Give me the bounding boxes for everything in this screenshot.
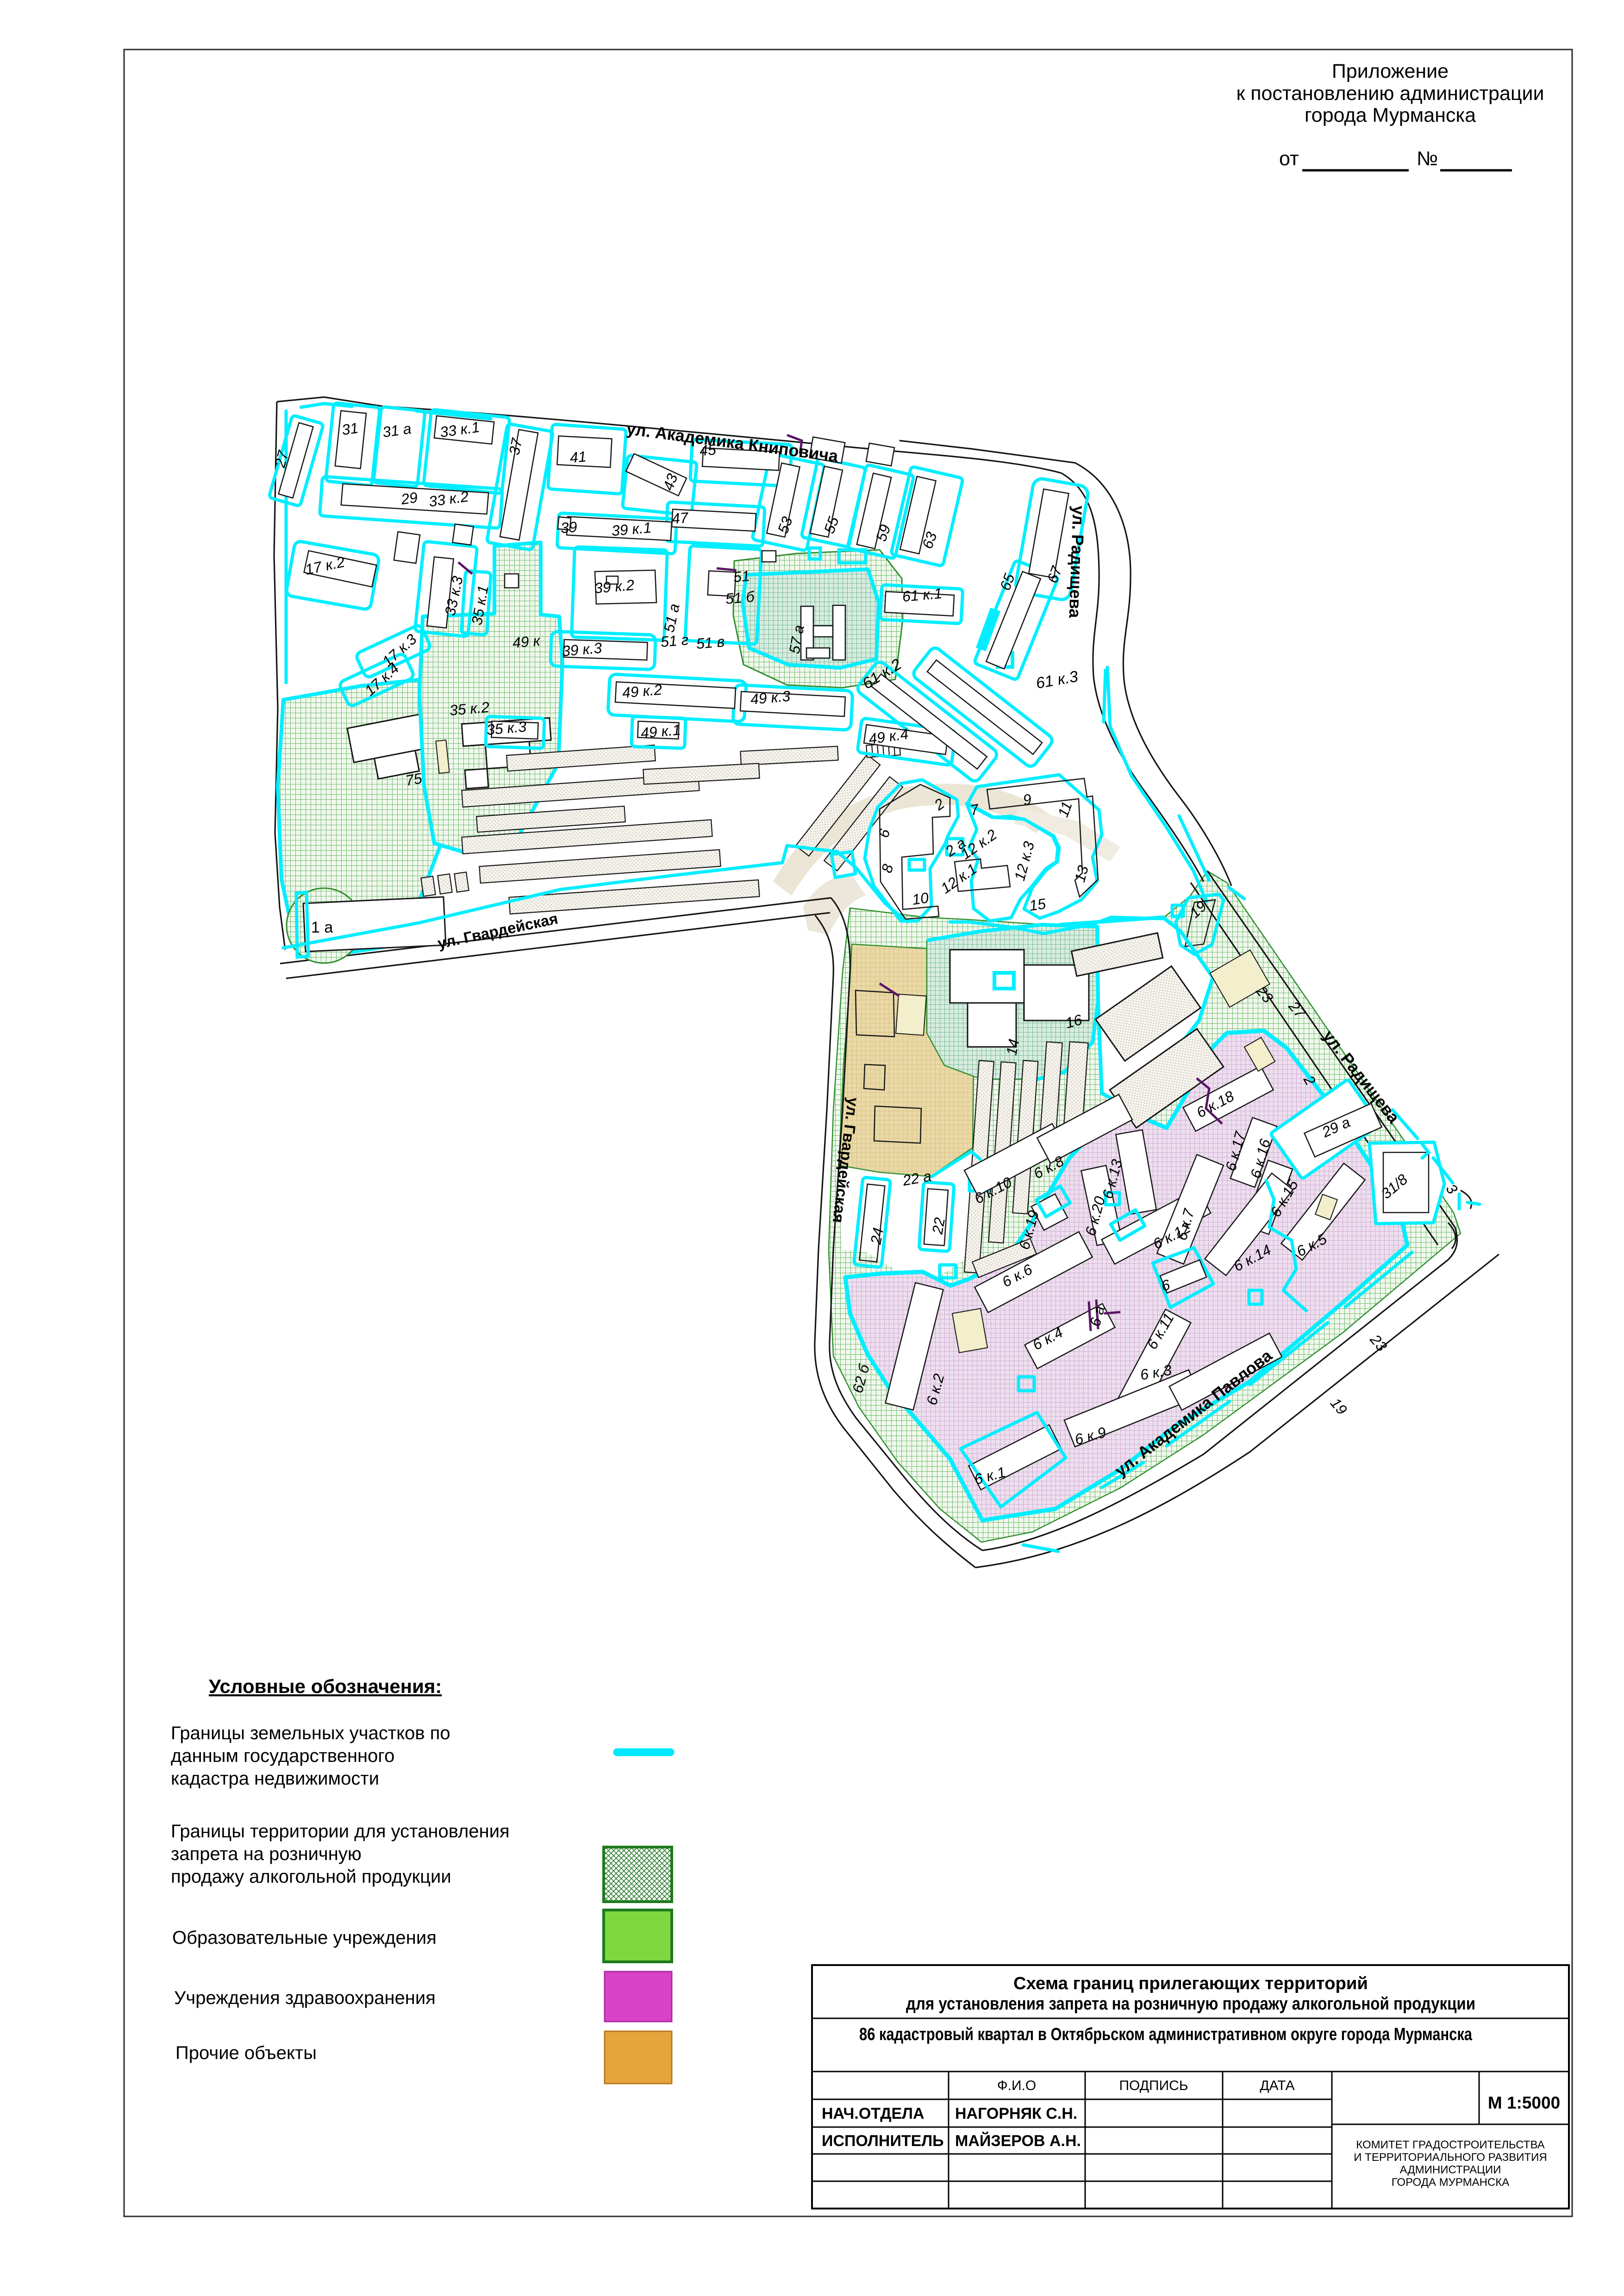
svg-text:86 кадастровый квартал в Октяб: 86 кадастровый квартал в Октябрьском адм… bbox=[859, 2025, 1473, 2044]
svg-text:запрета на розничную: запрета на розничную bbox=[171, 1844, 362, 1864]
svg-text:И ТЕРРИТОРИАЛЬНОГО РАЗВИТИЯ: И ТЕРРИТОРИАЛЬНОГО РАЗВИТИЯ bbox=[1354, 2151, 1547, 2164]
svg-text:22: 22 bbox=[929, 1216, 948, 1236]
svg-text:10: 10 bbox=[911, 889, 930, 908]
svg-text:24: 24 bbox=[867, 1226, 887, 1246]
svg-text:31: 31 bbox=[341, 419, 359, 438]
svg-text:№: № bbox=[1417, 148, 1438, 170]
svg-text:29: 29 bbox=[400, 489, 418, 508]
svg-text:ПОДПИСЬ: ПОДПИСЬ bbox=[1119, 2078, 1188, 2093]
svg-text:49 к.1: 49 к.1 bbox=[640, 722, 681, 741]
svg-text:к постановлению администрации: к постановлению администрации bbox=[1236, 82, 1544, 105]
svg-text:АДМИНИСТРАЦИИ: АДМИНИСТРАЦИИ bbox=[1400, 2164, 1501, 2176]
svg-text:49 к.3: 49 к.3 bbox=[750, 688, 791, 708]
svg-text:51 в: 51 в bbox=[695, 633, 725, 652]
svg-text:51 г: 51 г bbox=[660, 631, 689, 650]
svg-text:МАЙЗЕРОВ А.Н.: МАЙЗЕРОВ А.Н. bbox=[955, 2132, 1081, 2150]
svg-text:41: 41 bbox=[569, 448, 587, 466]
svg-text:39: 39 bbox=[560, 518, 578, 536]
svg-text:города Мурманска: города Мурманска bbox=[1305, 104, 1476, 126]
svg-text:КОМИТЕТ ГРАДОСТРОИТЕЛЬСТВА: КОМИТЕТ ГРАДОСТРОИТЕЛЬСТВА bbox=[1356, 2139, 1544, 2151]
svg-text:М 1:5000: М 1:5000 bbox=[1488, 2093, 1560, 2112]
svg-text:НАГОРНЯК С.Н.: НАГОРНЯК С.Н. bbox=[955, 2105, 1077, 2122]
svg-text:51 б: 51 б bbox=[725, 588, 755, 607]
svg-text:НАЧ.ОТДЕЛА: НАЧ.ОТДЕЛА bbox=[822, 2105, 924, 2122]
svg-text:49 к.2: 49 к.2 bbox=[621, 681, 662, 701]
svg-text:для установления запрета на ро: для установления запрета на розничную пр… bbox=[906, 1994, 1475, 2014]
svg-text:45: 45 bbox=[699, 441, 717, 459]
svg-text:39 к.3: 39 к.3 bbox=[561, 640, 602, 660]
svg-text:кадастра недвижимости: кадастра недвижимости bbox=[171, 1768, 379, 1789]
svg-text:Границы территории для установ: Границы территории для установления bbox=[171, 1821, 510, 1842]
svg-text:75: 75 bbox=[404, 770, 424, 789]
svg-text:61 к.1: 61 к.1 bbox=[901, 585, 943, 605]
svg-text:ГОРОДА МУРМАНСКА: ГОРОДА МУРМАНСКА bbox=[1392, 2176, 1510, 2189]
svg-text:15: 15 bbox=[1028, 895, 1047, 914]
svg-text:49 к: 49 к bbox=[512, 632, 541, 651]
svg-text:Условные обозначения:: Условные обозначения: bbox=[209, 1675, 442, 1697]
svg-text:51: 51 bbox=[732, 567, 750, 585]
svg-text:ул. Радищева: ул. Радищева bbox=[1065, 505, 1088, 619]
svg-text:35 к.2: 35 к.2 bbox=[449, 699, 490, 719]
svg-text:1 а: 1 а bbox=[311, 919, 333, 936]
svg-text:Приложение: Приложение bbox=[1332, 60, 1449, 82]
svg-text:данным государственного: данным государственного bbox=[171, 1746, 394, 1766]
svg-text:продажу алкогольной продукции: продажу алкогольной продукции bbox=[171, 1867, 451, 1887]
svg-text:ДАТА: ДАТА bbox=[1260, 2078, 1294, 2093]
svg-text:14: 14 bbox=[1003, 1038, 1022, 1057]
svg-text:ИСПОЛНИТЕЛЬ: ИСПОЛНИТЕЛЬ bbox=[822, 2132, 944, 2150]
svg-text:Образовательные учреждения: Образовательные учреждения bbox=[172, 1928, 437, 1948]
svg-text:Схема границ прилегающих терри: Схема границ прилегающих территорий bbox=[1013, 1974, 1368, 1993]
svg-text:39 к.1: 39 к.1 bbox=[611, 519, 652, 539]
svg-text:35 к.3: 35 к.3 bbox=[486, 718, 527, 738]
svg-text:от: от bbox=[1279, 148, 1299, 170]
svg-text:Ф.И.О: Ф.И.О bbox=[997, 2078, 1036, 2093]
svg-text:39 к.2: 39 к.2 bbox=[593, 577, 635, 597]
svg-text:47: 47 bbox=[671, 509, 689, 527]
svg-text:Прочие объекты: Прочие объекты bbox=[175, 2043, 317, 2063]
svg-text:Учреждения здравоохранения: Учреждения здравоохранения bbox=[174, 1988, 436, 2008]
svg-text:Границы земельных участков по: Границы земельных участков по bbox=[171, 1723, 450, 1743]
